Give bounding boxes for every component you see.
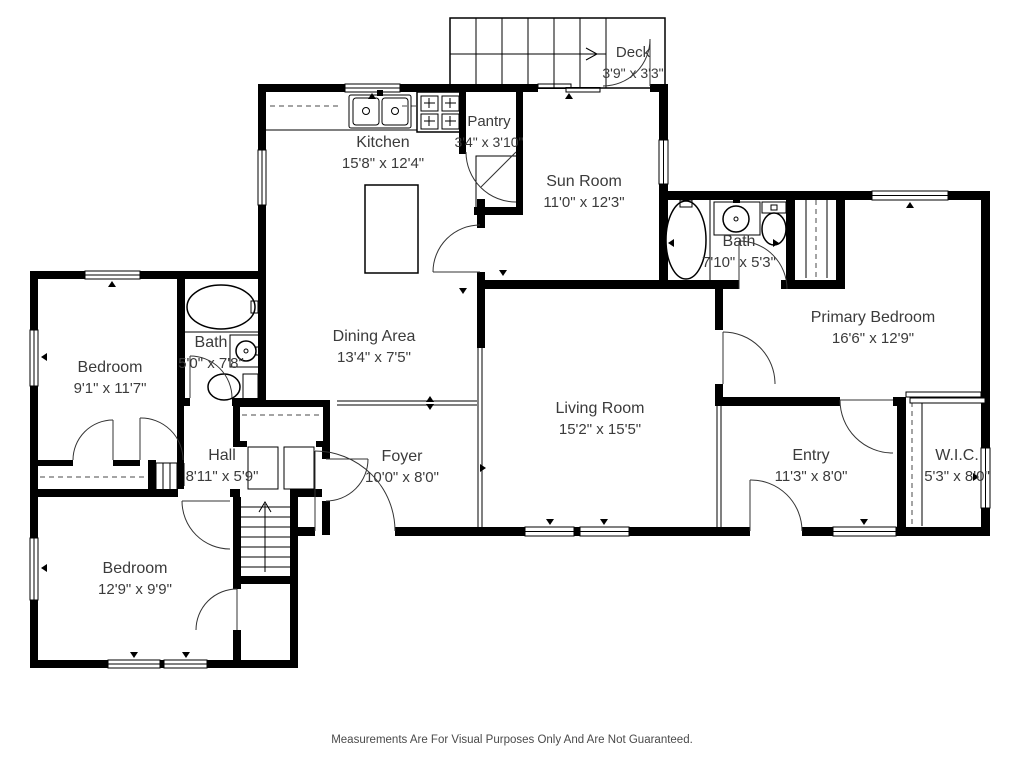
entry-interior-door bbox=[840, 400, 893, 453]
room-name: Bedroom bbox=[98, 558, 172, 579]
room-dims: 13'4" x 7'5" bbox=[333, 347, 416, 368]
room-name: W.I.C. bbox=[924, 445, 990, 466]
window-kitchen-top bbox=[345, 84, 400, 92]
room-name: Dining Area bbox=[333, 326, 416, 347]
foyer-side-door bbox=[326, 459, 368, 501]
room-name: Foyer bbox=[365, 446, 439, 467]
room-label-pantry: Pantry 3'4" x 3'10" bbox=[455, 111, 524, 153]
room-dims: 7'10" x 5'3" bbox=[702, 252, 776, 273]
room-label-primary-bedroom: Primary Bedroom 16'6" x 12'9" bbox=[811, 307, 935, 349]
room-dims: 15'2" x 15'5" bbox=[556, 419, 645, 440]
room-name: Bath bbox=[702, 231, 776, 252]
window-bedroom-left-side bbox=[30, 330, 38, 386]
room-label-sun-room: Sun Room 11'0" x 12'3" bbox=[543, 171, 624, 213]
basement-stairs bbox=[241, 502, 290, 572]
room-label-foyer: Foyer 10'0" x 8'0" bbox=[365, 446, 439, 488]
bathtub bbox=[187, 285, 255, 329]
disclaimer-text: Measurements Are For Visual Purposes Onl… bbox=[331, 734, 693, 746]
room-dims: 3'9" x 3'3" bbox=[602, 63, 663, 84]
room-name: Primary Bedroom bbox=[811, 307, 935, 328]
window-living-bottom-1 bbox=[525, 527, 574, 536]
primary-bedroom-door bbox=[723, 332, 775, 384]
window-kitchen-left bbox=[258, 150, 266, 205]
entry-front-door bbox=[750, 480, 802, 531]
kitchen-island bbox=[365, 185, 418, 273]
room-name: Deck bbox=[602, 42, 663, 63]
room-dims: 11'3" x 8'0" bbox=[775, 466, 848, 487]
room-name: Living Room bbox=[556, 398, 645, 419]
room-label-kitchen: Kitchen 15'8" x 12'4" bbox=[342, 132, 424, 174]
room-name: Sun Room bbox=[543, 171, 624, 192]
sink-vanity bbox=[714, 198, 760, 235]
bedroom-lower-door bbox=[182, 501, 230, 549]
window-primary-top bbox=[872, 191, 948, 200]
room-label-entry: Entry 11'3" x 8'0" bbox=[775, 445, 848, 487]
pantry-door bbox=[466, 152, 516, 202]
room-name: Hall bbox=[186, 445, 259, 466]
window-entry-bottom bbox=[833, 527, 896, 536]
room-dims: 3'4" x 3'10" bbox=[455, 132, 524, 153]
bedroom-left-closet-door-a bbox=[73, 420, 113, 460]
room-label-bath-upper: Bath 7'10" x 5'3" bbox=[702, 231, 776, 273]
room-name: Bedroom bbox=[74, 357, 147, 378]
wic-sliding-doors bbox=[906, 392, 985, 403]
room-dims: 10'0" x 8'0" bbox=[365, 467, 439, 488]
understair-closet-door bbox=[196, 589, 237, 630]
room-dims: 11'0" x 12'3" bbox=[543, 192, 624, 213]
room-label-hall: Hall 8'11" x 5'9" bbox=[186, 445, 259, 487]
room-label-living-room: Living Room 15'2" x 15'5" bbox=[556, 398, 645, 440]
window-living-bottom-2 bbox=[580, 527, 629, 536]
room-dims: 5'3" x 8'0" bbox=[924, 466, 990, 487]
room-dims: 8'11" x 5'9" bbox=[186, 466, 259, 487]
window-bedroom-left-top bbox=[85, 271, 140, 279]
window-bedroom-lower-bottom-1 bbox=[108, 660, 160, 668]
windows bbox=[30, 84, 990, 668]
room-name: Kitchen bbox=[342, 132, 424, 153]
room-name: Bath bbox=[178, 332, 244, 353]
hall-closet-door-2 bbox=[284, 447, 314, 489]
kitchen-sink bbox=[349, 90, 411, 128]
room-dims: 5'0" x 7'8" bbox=[178, 353, 244, 374]
floor-plan: Deck 3'9" x 3'3" Kitchen 15'8" x 12'4" P… bbox=[0, 0, 1024, 768]
kitchen-sunroom-door bbox=[433, 225, 480, 272]
room-name: Pantry bbox=[455, 111, 524, 132]
room-dims: 16'6" x 12'9" bbox=[811, 328, 935, 349]
window-bedroom-lower-bottom-2 bbox=[164, 660, 207, 668]
room-label-deck: Deck 3'9" x 3'3" bbox=[602, 42, 663, 84]
room-label-dining-area: Dining Area 13'4" x 7'5" bbox=[333, 326, 416, 368]
room-dims: 15'8" x 12'4" bbox=[342, 153, 424, 174]
room-label-bath-left: Bath 5'0" x 7'8" bbox=[178, 332, 244, 374]
room-dims: 9'1" x 11'7" bbox=[74, 378, 147, 399]
walls bbox=[30, 84, 990, 668]
window-bedroom-lower-side bbox=[30, 538, 38, 600]
room-label-bedroom-lower: Bedroom 12'9" x 9'9" bbox=[98, 558, 172, 600]
window-sunroom-right bbox=[659, 140, 668, 184]
room-name: Entry bbox=[775, 445, 848, 466]
bedroom-left-closet-door-b bbox=[140, 418, 183, 460]
room-label-bedroom-left: Bedroom 9'1" x 11'7" bbox=[74, 357, 147, 399]
toilet bbox=[208, 374, 258, 400]
room-dims: 12'9" x 9'9" bbox=[98, 579, 172, 600]
bathtub bbox=[666, 201, 706, 279]
room-label-wic: W.I.C. 5'3" x 8'0" bbox=[924, 445, 990, 487]
